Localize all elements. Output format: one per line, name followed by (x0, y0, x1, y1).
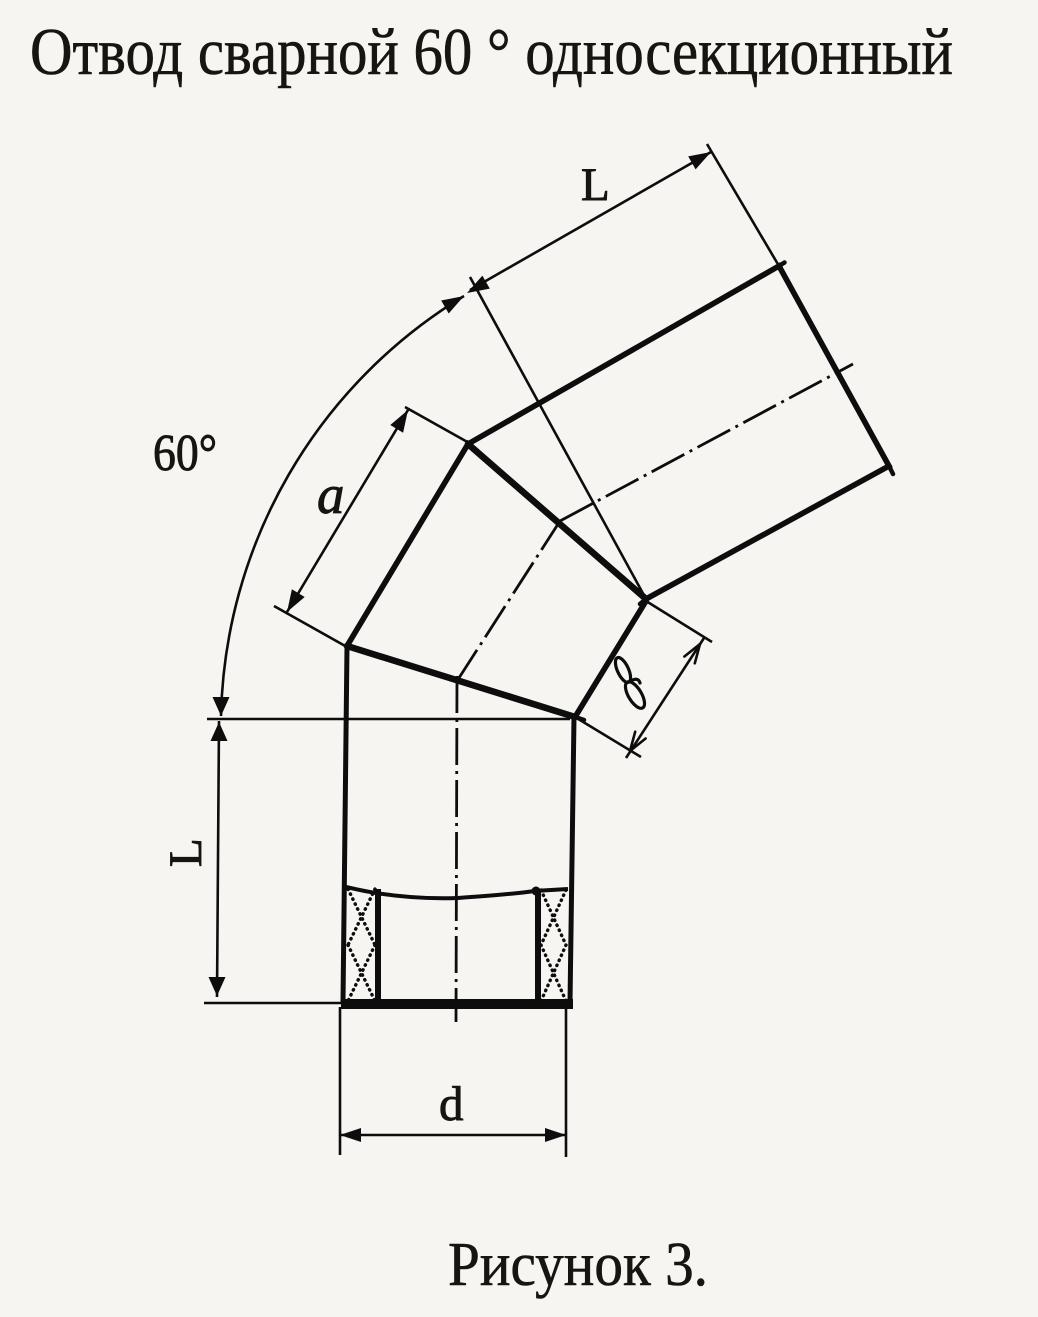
svg-text:60°: 60° (153, 425, 217, 482)
svg-text:Отвод сварной 60 ° односекцион: Отвод сварной 60 ° односекционный (30, 15, 953, 89)
svg-text:a: a (317, 464, 345, 525)
svg-text:L: L (581, 159, 610, 211)
svg-text:d: d (439, 1076, 464, 1131)
svg-text:Рисунок 3.: Рисунок 3. (448, 1231, 708, 1299)
svg-text:L: L (160, 838, 212, 867)
